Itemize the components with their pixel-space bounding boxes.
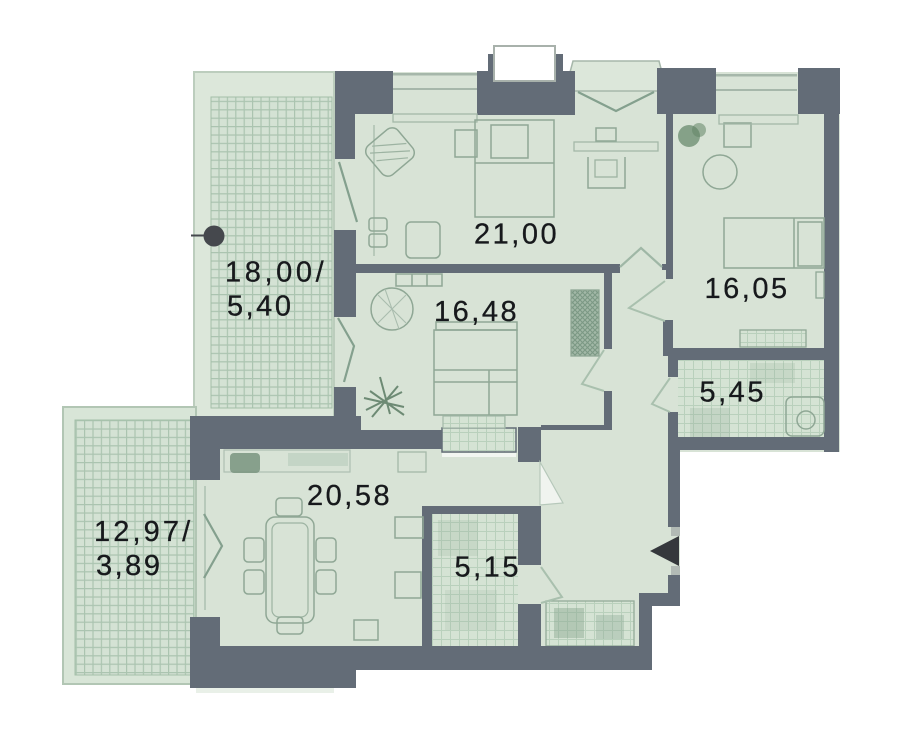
svg-text:5,40: 5,40 [227,291,293,323]
svg-text:5,15: 5,15 [455,552,521,584]
svg-text:12,97/: 12,97/ [94,516,193,548]
svg-text:3,89: 3,89 [96,550,162,582]
svg-text:18,00/: 18,00/ [225,257,327,289]
svg-text:16,48: 16,48 [434,296,519,328]
svg-text:16,05: 16,05 [705,273,790,305]
svg-text:5,45: 5,45 [700,377,766,409]
svg-text:20,58: 20,58 [307,480,392,512]
svg-text:21,00: 21,00 [474,219,559,251]
